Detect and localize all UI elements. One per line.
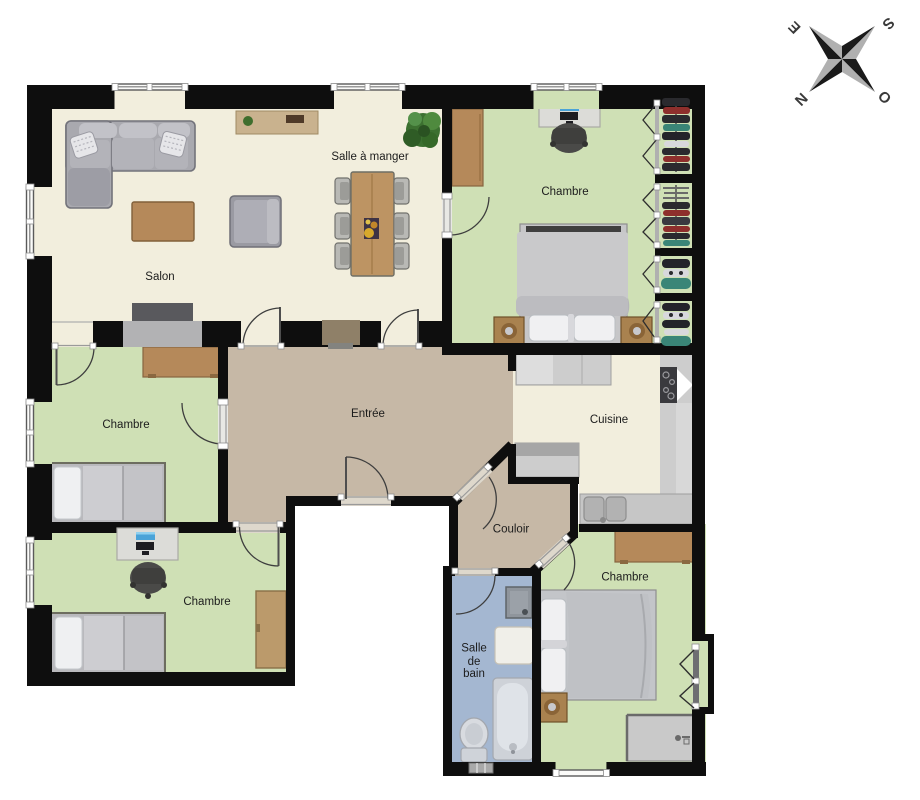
svg-text:Salle à manger: Salle à manger xyxy=(331,151,409,163)
svg-text:Chambre: Chambre xyxy=(601,572,648,584)
svg-text:Entrée: Entrée xyxy=(351,408,385,420)
svg-text:Salon: Salon xyxy=(145,271,174,283)
svg-text:Chambre: Chambre xyxy=(102,419,149,431)
svg-text:bain: bain xyxy=(463,668,485,680)
svg-text:Chambre: Chambre xyxy=(183,596,230,608)
svg-text:Salle: Salle xyxy=(461,643,487,655)
svg-text:Cuisine: Cuisine xyxy=(590,414,628,426)
svg-text:Chambre: Chambre xyxy=(541,186,588,198)
svg-text:de: de xyxy=(468,656,481,668)
svg-text:Couloir: Couloir xyxy=(493,524,530,536)
